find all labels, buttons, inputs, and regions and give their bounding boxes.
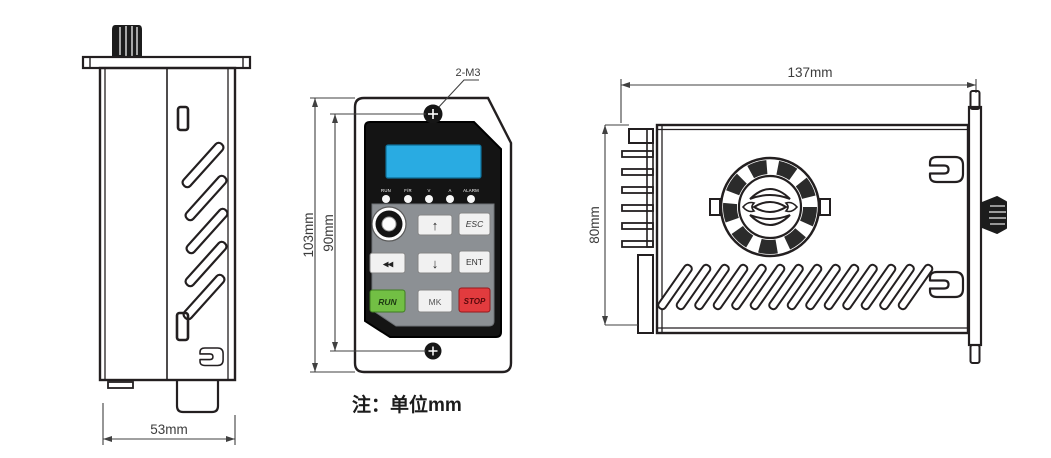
led-label-run: RUN bbox=[381, 188, 391, 193]
terminal-block-fins bbox=[622, 129, 653, 333]
cooling-fan bbox=[710, 158, 830, 256]
led-alarm bbox=[467, 195, 475, 203]
side-vent-slats bbox=[181, 141, 229, 321]
side-view: 53mm bbox=[80, 13, 275, 458]
key-run-label: RUN bbox=[378, 297, 397, 307]
key-esc-label: ESC bbox=[466, 219, 484, 229]
top-knob bbox=[982, 197, 1006, 233]
key-stop-label: STOP bbox=[464, 297, 486, 306]
key-mk-label: MK bbox=[429, 297, 442, 307]
side-bottom-profile bbox=[108, 380, 218, 412]
side-top-flange bbox=[83, 57, 250, 68]
mount-slot-bottom bbox=[930, 272, 963, 297]
dim-80mm: 80mm bbox=[587, 125, 638, 325]
callout-leader bbox=[437, 80, 479, 109]
key-ent-label: ENT bbox=[466, 257, 483, 267]
screw-callout-label: 2-M3 bbox=[455, 67, 480, 79]
dim-80mm-label: 80mm bbox=[587, 206, 602, 244]
front-view: RUN F/R V A ALARM ↑ ESC ◀◀ ↓ ENT bbox=[298, 58, 533, 398]
key-rewind-label: ◀◀ bbox=[383, 260, 394, 269]
mount-slot-top bbox=[930, 157, 963, 182]
top-vent-slats bbox=[657, 263, 934, 310]
led-label-fr: F/R bbox=[404, 188, 412, 193]
side-vent-slot-top bbox=[178, 107, 188, 130]
front-panel-edge bbox=[969, 91, 981, 363]
key-up-label: ↑ bbox=[432, 218, 439, 233]
side-knob bbox=[112, 25, 142, 57]
dim-90mm-label: 90mm bbox=[321, 214, 336, 252]
lcd-screen bbox=[386, 145, 481, 178]
led-label-alarm: ALARM bbox=[463, 188, 479, 193]
key-down-label: ↓ bbox=[432, 256, 439, 271]
led-label-a: A bbox=[448, 188, 451, 193]
dim-53mm: 53mm bbox=[103, 403, 235, 445]
top-view: 137mm 80mm bbox=[585, 53, 1020, 383]
led-v bbox=[425, 195, 433, 203]
speed-knob bbox=[372, 207, 406, 241]
side-din-clip bbox=[200, 348, 223, 366]
mounting-screw-bottom bbox=[425, 343, 442, 360]
dim-137mm: 137mm bbox=[621, 65, 976, 123]
led-run bbox=[382, 195, 390, 203]
drawing-sheet: 53mm RUN F/R V A ALARM bbox=[0, 0, 1051, 458]
dim-53mm-label: 53mm bbox=[150, 422, 188, 437]
led-label-v: V bbox=[427, 188, 430, 193]
led-fr bbox=[404, 195, 412, 203]
mounting-screw-top bbox=[424, 105, 443, 124]
unit-note: 注：单位mm bbox=[352, 390, 542, 417]
dim-137mm-label: 137mm bbox=[787, 65, 832, 80]
dim-103mm-label: 103mm bbox=[301, 212, 316, 257]
led-a bbox=[446, 195, 454, 203]
